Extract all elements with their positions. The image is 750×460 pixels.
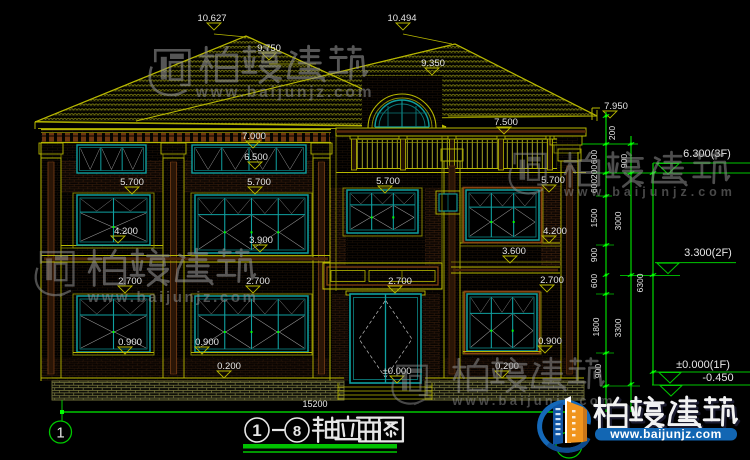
svg-text:1: 1: [252, 421, 261, 440]
svg-text:2.700: 2.700: [246, 276, 270, 287]
svg-text:3300: 3300: [613, 318, 623, 337]
svg-text:15200: 15200: [302, 399, 327, 409]
svg-text:5.700: 5.700: [376, 176, 400, 187]
svg-text:2.700: 2.700: [118, 276, 142, 287]
svg-text:www.baijunjz.com: www.baijunjz.com: [195, 84, 375, 101]
svg-text:3000: 3000: [613, 211, 623, 230]
svg-text:1500: 1500: [589, 208, 599, 227]
svg-text:www.baijunjz.com: www.baijunjz.com: [563, 185, 736, 199]
svg-text:10.627: 10.627: [197, 13, 226, 24]
svg-text:6300: 6300: [635, 273, 645, 292]
svg-text:-0.450: -0.450: [702, 372, 733, 384]
svg-text:200: 200: [607, 126, 617, 140]
svg-text:0.200: 0.200: [217, 361, 241, 372]
svg-text:www.baijunjz.com: www.baijunjz.com: [86, 289, 258, 306]
svg-text:www.baijunjz.com: www.baijunjz.com: [609, 427, 722, 441]
svg-text:7.950: 7.950: [604, 101, 628, 112]
svg-text:7.000: 7.000: [242, 131, 266, 142]
svg-text:0.900: 0.900: [195, 337, 219, 348]
svg-text:9.350: 9.350: [421, 58, 445, 69]
svg-text:3.300(2F): 3.300(2F): [684, 247, 732, 259]
svg-text:6.500: 6.500: [244, 152, 268, 163]
svg-text:3.900: 3.900: [249, 235, 273, 246]
svg-text:3.600: 3.600: [502, 246, 526, 257]
svg-text:1: 1: [56, 425, 64, 442]
svg-text:2.700: 2.700: [388, 276, 412, 287]
svg-text:4.200: 4.200: [114, 226, 138, 237]
svg-text:900: 900: [589, 248, 599, 262]
svg-text:0.900: 0.900: [538, 336, 562, 347]
svg-text:2.700: 2.700: [540, 275, 564, 286]
svg-text:6.300(3F): 6.300(3F): [683, 148, 731, 160]
svg-text:±0.000(1F): ±0.000(1F): [676, 359, 730, 371]
svg-text:5.700: 5.700: [120, 177, 144, 188]
svg-text:600: 600: [589, 274, 599, 288]
svg-text:0.900: 0.900: [118, 337, 142, 348]
svg-text:4.200: 4.200: [543, 226, 567, 237]
svg-text:5.700: 5.700: [247, 177, 271, 188]
svg-text:www.baijunjz.com: www.baijunjz.com: [451, 393, 615, 408]
svg-text:10.494: 10.494: [387, 13, 416, 24]
svg-text:1800: 1800: [591, 317, 601, 336]
svg-text:7.500: 7.500: [494, 117, 518, 128]
svg-text:8: 8: [293, 423, 301, 440]
